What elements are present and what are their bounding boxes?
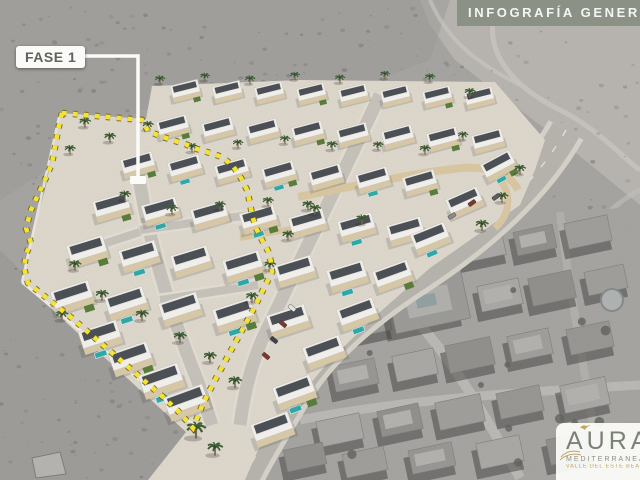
brand-subtitle: MEDITERRANEAN [566, 456, 640, 463]
title-banner: INFOGRAFÍA GENERAL [457, 0, 640, 26]
brand-name: AURA [566, 428, 640, 454]
infographic-page: FASE 1 INFOGRAFÍA GENERAL AURA MEDITERRA… [0, 0, 640, 480]
aerial-render [0, 0, 640, 480]
brand-tagline: VALLE DEL ESTE BEACH [566, 464, 640, 470]
brand-logo: AURA MEDITERRANEAN VALLE DEL ESTE BEACH [556, 423, 640, 480]
photo-grain-overlay [0, 0, 640, 480]
phase-label: FASE 1 [16, 46, 85, 68]
